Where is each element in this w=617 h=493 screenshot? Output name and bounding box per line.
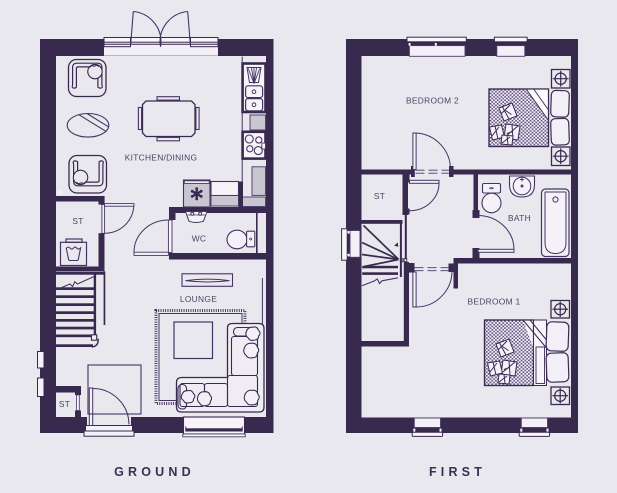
svg-text:ST: ST bbox=[72, 216, 83, 226]
svg-text:ST: ST bbox=[59, 399, 70, 409]
svg-text:FIRST: FIRST bbox=[429, 465, 486, 479]
svg-text:LOUNGE: LOUNGE bbox=[180, 294, 217, 304]
svg-text:BEDROOM 1: BEDROOM 1 bbox=[468, 297, 521, 307]
svg-text:BEDROOM 2: BEDROOM 2 bbox=[406, 96, 459, 106]
svg-text:BATH: BATH bbox=[508, 213, 531, 223]
svg-text:GROUND: GROUND bbox=[114, 465, 195, 479]
svg-text:WC: WC bbox=[192, 234, 207, 244]
svg-text:KITCHEN/DINING: KITCHEN/DINING bbox=[125, 153, 198, 163]
svg-text:ST: ST bbox=[374, 191, 385, 201]
